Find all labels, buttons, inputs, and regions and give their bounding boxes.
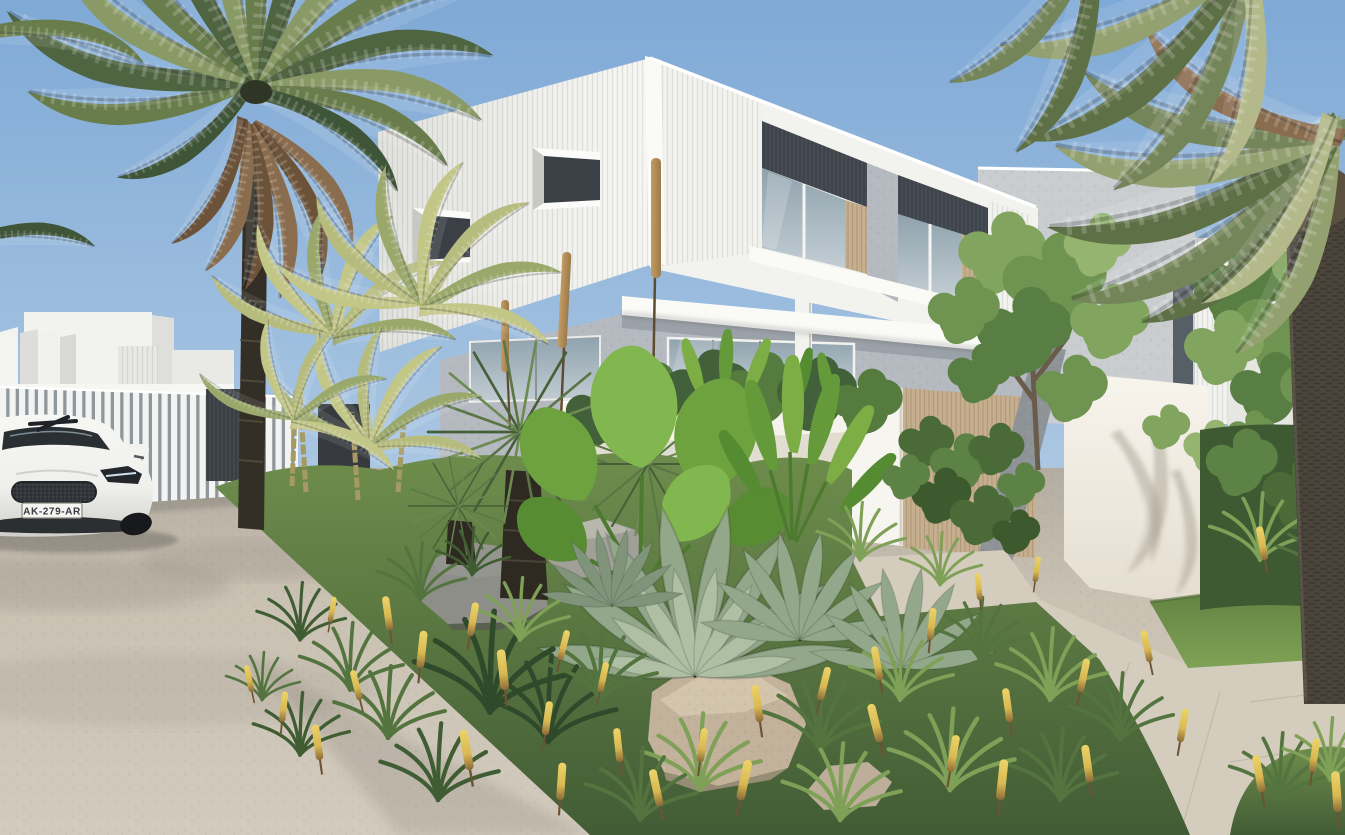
architectural-render: AK-279-AR xyxy=(0,0,1345,835)
license-plate: AK-279-AR xyxy=(22,503,82,518)
timber-texture xyxy=(845,200,867,274)
box-window xyxy=(533,148,600,210)
license-plate-text: AK-279-AR xyxy=(23,507,81,518)
palm-crown-core xyxy=(240,80,272,104)
box-window-glass xyxy=(544,156,600,203)
side-mirror xyxy=(126,444,149,456)
grille-mesh xyxy=(12,482,96,502)
flower-spike xyxy=(651,158,661,278)
